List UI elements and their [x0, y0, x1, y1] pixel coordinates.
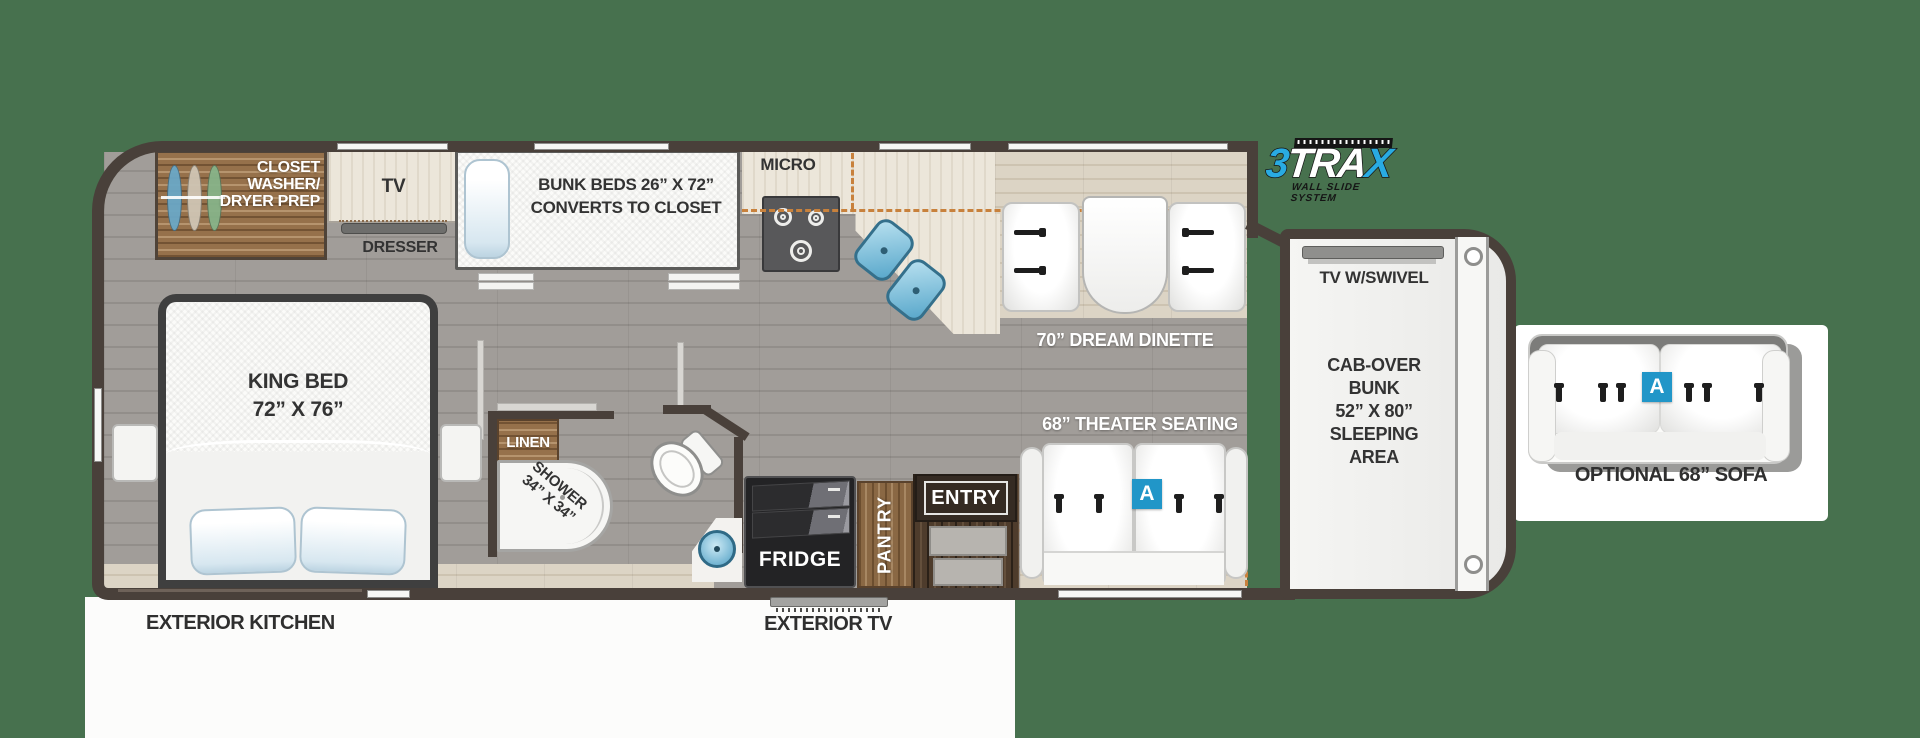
- optional-sofa-label: OPTIONAL 68” SOFA: [1514, 462, 1828, 488]
- cab-tv-shelf: [1308, 259, 1436, 264]
- 3trax-wordmark: 3TRAX: [1264, 140, 1393, 187]
- sofa-option-a-badge: A: [1642, 372, 1672, 402]
- cab-circle-icon: [1464, 555, 1483, 574]
- exterior-kitchen-door: [118, 589, 362, 592]
- seat-belt-icon: [1556, 386, 1562, 402]
- window: [534, 143, 669, 150]
- cab-bunk-label: CAB-OVER BUNK 52” X 80” SLEEPING AREA: [1290, 354, 1458, 469]
- seat-belt-icon: [1704, 386, 1710, 402]
- coach-outline-wall: [92, 141, 1258, 600]
- window: [879, 143, 971, 150]
- 3trax-subtitle: WALL SLIDE SYSTEM: [1290, 182, 1404, 204]
- exterior-tv-icon: [770, 597, 888, 607]
- 3trax-logo: 3TRAX WALL SLIDE SYSTEM: [1263, 138, 1409, 194]
- cab-tv-label: TV W/SWIVEL: [1290, 267, 1458, 289]
- exterior-kitchen-label: EXTERIOR KITCHEN: [146, 612, 335, 635]
- sofa-armrest: [1762, 350, 1790, 462]
- sofa-armrest: [1528, 350, 1556, 462]
- seat-belt-icon: [1600, 386, 1606, 402]
- exterior-tv-label: EXTERIOR TV: [758, 612, 898, 636]
- seat-belt-icon: [1756, 386, 1762, 402]
- window: [1058, 590, 1242, 598]
- window: [367, 590, 410, 598]
- cab-divider-strip: [1455, 237, 1489, 591]
- cab-over-bunk: TV W/SWIVEL CAB-OVER BUNK 52” X 80” SLEE…: [1280, 229, 1516, 599]
- window: [1008, 143, 1228, 150]
- seat-belt-icon: [1686, 386, 1692, 402]
- seat-belt-icon: [1618, 386, 1624, 402]
- cab-circle-icon: [1464, 247, 1483, 266]
- rv-floorplan: MICRO CLOSET WASHER/ DRYER PREP TV DRESS…: [0, 0, 1920, 738]
- cab-tv-icon: [1302, 246, 1444, 259]
- window: [94, 388, 102, 462]
- sofa-front-band: [1554, 432, 1766, 460]
- window: [337, 143, 448, 150]
